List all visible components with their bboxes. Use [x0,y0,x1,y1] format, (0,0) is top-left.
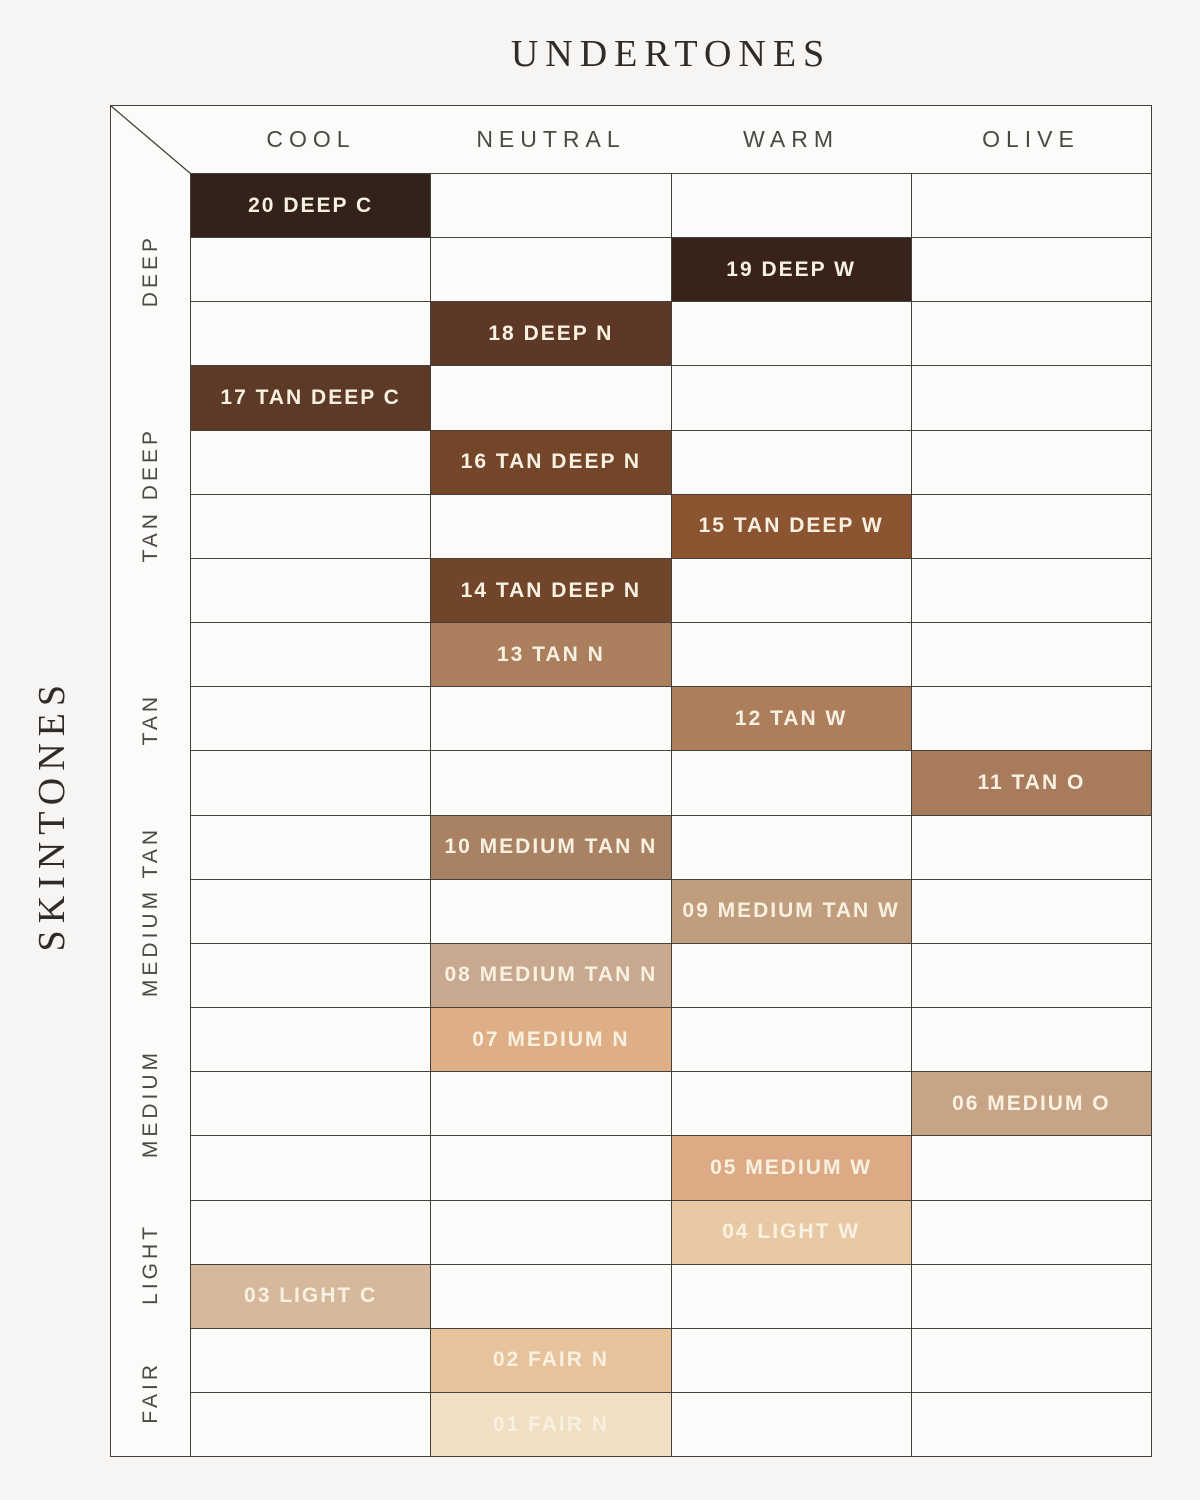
skintones-axis-title: SKINTONES [30,678,74,951]
empty-cell [430,366,670,429]
shade-label: 15 TAN DEEP W [699,514,884,538]
empty-cell [430,1265,670,1328]
shade-row-17-tan-deep-c: 17 TAN DEEP C [191,365,1151,429]
shade-grid: 20 DEEP C19 DEEP W18 DEEP N17 TAN DEEP C… [191,174,1151,1456]
empty-cell [671,1072,911,1135]
empty-cell [671,1265,911,1328]
shade-cell-02-fair-n: 02 FAIR N [430,1329,670,1392]
shade-row-09-medium-tan-w: 09 MEDIUM TAN W [191,879,1151,943]
shade-row-03-light-c: 03 LIGHT C [191,1264,1151,1328]
empty-cell [191,559,430,622]
shade-row-14-tan-deep-n: 14 TAN DEEP N [191,558,1151,622]
empty-cell [430,174,670,237]
column-header-neutral: NEUTRAL [431,106,671,173]
shade-row-01-fair-n: 01 FAIR N [191,1392,1151,1456]
shade-cell-03-light-c: 03 LIGHT C [191,1265,430,1328]
shade-row-13-tan-n: 13 TAN N [191,622,1151,686]
empty-cell [911,1201,1151,1264]
empty-cell [191,1136,430,1199]
shade-row-08-medium-tan-n: 08 MEDIUM TAN N [191,943,1151,1007]
empty-cell [191,944,430,1007]
shade-row-11-tan-o: 11 TAN O [191,750,1151,814]
empty-cell [191,623,430,686]
shade-label: 17 TAN DEEP C [220,386,400,410]
shade-cell-15-tan-deep-w: 15 TAN DEEP W [671,495,911,558]
empty-cell [671,944,911,1007]
empty-cell [911,623,1151,686]
empty-cell [191,880,430,943]
empty-cell [671,1329,911,1392]
row-group-label: FAIR [139,1361,163,1424]
shade-cell-04-light-w: 04 LIGHT W [671,1201,911,1264]
shade-label: 05 MEDIUM W [710,1156,872,1180]
empty-cell [911,1329,1151,1392]
empty-cell [430,687,670,750]
empty-cell [430,238,670,301]
empty-cell [911,559,1151,622]
row-group-label: DEEP [139,234,163,307]
shade-cell-20-deep-c: 20 DEEP C [191,174,430,237]
shade-row-02-fair-n: 02 FAIR N [191,1328,1151,1392]
empty-cell [191,495,430,558]
shade-row-19-deep-w: 19 DEEP W [191,237,1151,301]
shade-label: 03 LIGHT C [244,1284,377,1308]
shade-row-05-medium-w: 05 MEDIUM W [191,1135,1151,1199]
empty-cell [671,1393,911,1456]
row-group-label: TAN DEEP [139,427,163,562]
empty-cell [671,302,911,365]
shade-matrix-table: COOLNEUTRALWARMOLIVE DEEPTAN DEEPTANMEDI… [110,105,1152,1457]
shade-row-07-medium-n: 07 MEDIUM N [191,1007,1151,1071]
shade-row-18-deep-n: 18 DEEP N [191,301,1151,365]
shade-label: 01 FAIR N [493,1413,609,1437]
empty-cell [911,687,1151,750]
shade-label: 09 MEDIUM TAN W [682,899,899,923]
empty-cell [911,495,1151,558]
skintone-group-column: DEEPTAN DEEPTANMEDIUM TANMEDIUMLIGHTFAIR [111,174,191,1456]
empty-cell [191,1393,430,1456]
table-body: DEEPTAN DEEPTANMEDIUM TANMEDIUMLIGHTFAIR… [111,174,1151,1456]
row-group-light: LIGHT [111,1200,190,1328]
empty-cell [191,816,430,879]
empty-cell [671,623,911,686]
empty-cell [671,174,911,237]
shade-label: 19 DEEP W [726,258,856,282]
shade-cell-12-tan-w: 12 TAN W [671,687,911,750]
shade-cell-17-tan-deep-c: 17 TAN DEEP C [191,366,430,429]
shade-label: 18 DEEP N [488,322,613,346]
empty-cell [430,751,670,814]
empty-cell [430,1201,670,1264]
shade-chart-page: UNDERTONES SKINTONES COOLNEUTRALWARMOLIV… [0,0,1200,1500]
empty-cell [191,431,430,494]
empty-cell [911,1136,1151,1199]
shade-row-12-tan-w: 12 TAN W [191,686,1151,750]
empty-cell [671,431,911,494]
empty-cell [671,366,911,429]
shade-label: 10 MEDIUM TAN N [444,835,657,859]
shade-cell-14-tan-deep-n: 14 TAN DEEP N [430,559,670,622]
empty-cell [911,1265,1151,1328]
column-header-cool: COOL [191,106,431,173]
shade-label: 12 TAN W [735,707,847,731]
shade-label: 13 TAN N [497,643,605,667]
diagonal-divider-line [111,106,191,174]
shade-cell-01-fair-n: 01 FAIR N [430,1393,670,1456]
shade-cell-13-tan-n: 13 TAN N [430,623,670,686]
empty-cell [911,174,1151,237]
shade-cell-11-tan-o: 11 TAN O [911,751,1151,814]
shade-cell-06-medium-o: 06 MEDIUM O [911,1072,1151,1135]
row-group-medium-tan: MEDIUM TAN [111,815,190,1007]
empty-cell [191,751,430,814]
shade-cell-08-medium-tan-n: 08 MEDIUM TAN N [430,944,670,1007]
shade-row-15-tan-deep-w: 15 TAN DEEP W [191,494,1151,558]
empty-cell [191,1072,430,1135]
column-header-olive: OLIVE [911,106,1151,173]
shade-cell-09-medium-tan-w: 09 MEDIUM TAN W [671,880,911,943]
shade-label: 07 MEDIUM N [472,1028,629,1052]
shade-label: 02 FAIR N [493,1348,609,1372]
row-group-label: MEDIUM TAN [139,826,163,997]
empty-cell [911,1393,1151,1456]
shade-label: 08 MEDIUM TAN N [444,963,657,987]
shade-label: 14 TAN DEEP N [461,579,641,603]
shade-label: 06 MEDIUM O [952,1092,1111,1116]
row-group-fair: FAIR [111,1328,190,1456]
empty-cell [911,302,1151,365]
empty-cell [191,238,430,301]
skintones-axis-title-wrap: SKINTONES [0,173,104,1457]
empty-cell [430,880,670,943]
shade-row-16-tan-deep-n: 16 TAN DEEP N [191,430,1151,494]
column-header-warm: WARM [671,106,911,173]
empty-cell [191,1201,430,1264]
row-group-tan-deep: TAN DEEP [111,366,190,622]
empty-cell [911,944,1151,1007]
empty-cell [911,238,1151,301]
empty-cell [911,431,1151,494]
shade-label: 16 TAN DEEP N [461,450,641,474]
empty-cell [671,751,911,814]
row-group-medium: MEDIUM [111,1007,190,1199]
empty-cell [911,1008,1151,1071]
empty-cell [430,495,670,558]
shade-cell-19-deep-w: 19 DEEP W [671,238,911,301]
row-group-label: LIGHT [139,1223,163,1305]
empty-cell [430,1072,670,1135]
empty-cell [191,687,430,750]
column-headers: COOLNEUTRALWARMOLIVE [191,106,1151,174]
empty-cell [191,302,430,365]
shade-row-06-medium-o: 06 MEDIUM O [191,1071,1151,1135]
shade-cell-16-tan-deep-n: 16 TAN DEEP N [430,431,670,494]
row-group-label: TAN [139,693,163,745]
header-row: COOLNEUTRALWARMOLIVE [111,106,1151,174]
empty-cell [911,816,1151,879]
empty-cell [911,880,1151,943]
shade-cell-07-medium-n: 07 MEDIUM N [430,1008,670,1071]
empty-cell [671,1008,911,1071]
empty-cell [430,1136,670,1199]
undertones-axis-title: UNDERTONES [190,32,1152,76]
shade-row-04-light-w: 04 LIGHT W [191,1200,1151,1264]
row-group-tan: TAN [111,623,190,815]
shade-cell-05-medium-w: 05 MEDIUM W [671,1136,911,1199]
empty-cell [191,1329,430,1392]
row-group-deep: DEEP [111,174,190,366]
shade-label: 20 DEEP C [248,194,373,218]
shade-label: 11 TAN O [977,771,1085,795]
empty-cell [911,366,1151,429]
empty-cell [191,1008,430,1071]
empty-cell [671,816,911,879]
corner-cell [111,106,191,174]
shade-cell-18-deep-n: 18 DEEP N [430,302,670,365]
empty-cell [671,559,911,622]
shade-row-20-deep-c: 20 DEEP C [191,174,1151,237]
row-group-label: MEDIUM [139,1049,163,1158]
shade-cell-10-medium-tan-n: 10 MEDIUM TAN N [430,816,670,879]
shade-row-10-medium-tan-n: 10 MEDIUM TAN N [191,815,1151,879]
shade-label: 04 LIGHT W [722,1220,860,1244]
